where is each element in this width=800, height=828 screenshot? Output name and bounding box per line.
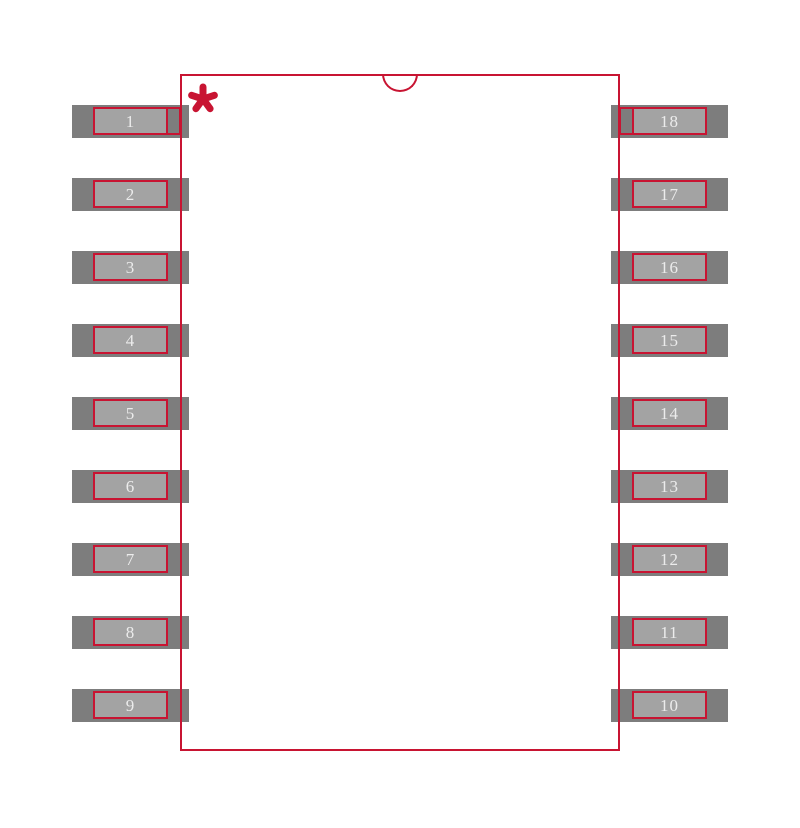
- pin-number-label: 10: [660, 697, 679, 714]
- pad-pin-10: 10: [611, 689, 728, 722]
- left-pad-column: 1 2 3 4 5: [72, 105, 189, 722]
- pin-lead-outline: 12: [632, 545, 707, 573]
- pin-number-label: 4: [126, 332, 136, 349]
- package-body-outline: [180, 74, 620, 751]
- pad-pin-8: 8: [72, 616, 189, 649]
- pin-number-label: 17: [660, 186, 679, 203]
- pin-number-label: 2: [126, 186, 136, 203]
- pad-pin-13: 13: [611, 470, 728, 503]
- pad-pin-9: 9: [72, 689, 189, 722]
- pin-lead-outline: 6: [93, 472, 168, 500]
- right-pad-column: 18 17 16 15 14: [611, 105, 728, 722]
- pin-lead-outline: 1: [93, 107, 168, 135]
- pin-lead-outline: 10: [632, 691, 707, 719]
- pin-number-label: 12: [660, 551, 679, 568]
- pin-number-label: 7: [126, 551, 136, 568]
- pin-number-label: 6: [126, 478, 136, 495]
- index-notch: [382, 74, 418, 92]
- pin-number-label: 1: [126, 113, 136, 130]
- pin-lead-outline: 13: [632, 472, 707, 500]
- pin-lead-outline: 2: [93, 180, 168, 208]
- pin-number-label: 18: [660, 113, 679, 130]
- pad-pin-3: 3: [72, 251, 189, 284]
- pin-lead-outline: 15: [632, 326, 707, 354]
- pad-pin-4: 4: [72, 324, 189, 357]
- pad-pin-15: 15: [611, 324, 728, 357]
- pin-number-label: 15: [660, 332, 679, 349]
- pin-lead-outline: 8: [93, 618, 168, 646]
- pin-number-label: 11: [660, 624, 678, 641]
- pin-number-label: 3: [126, 259, 136, 276]
- pad-pin-5: 5: [72, 397, 189, 430]
- pad-pin-11: 11: [611, 616, 728, 649]
- pin-lead-outline: 11: [632, 618, 707, 646]
- pin-lead-outline: 14: [632, 399, 707, 427]
- pad-pin-18: 18: [611, 105, 728, 138]
- pin1-asterisk-icon: [187, 83, 219, 115]
- pin-number-label: 14: [660, 405, 679, 422]
- pin-lead-outline: 7: [93, 545, 168, 573]
- pin-number-label: 13: [660, 478, 679, 495]
- pin-lead-outline: 17: [632, 180, 707, 208]
- pad-pin-7: 7: [72, 543, 189, 576]
- pad-pin-16: 16: [611, 251, 728, 284]
- pin-lead-outline: 16: [632, 253, 707, 281]
- pad-pin-17: 17: [611, 178, 728, 211]
- pin-lead-outline: 9: [93, 691, 168, 719]
- pin-lead-stub: [166, 107, 181, 135]
- pin-lead-outline: 3: [93, 253, 168, 281]
- pin-number-label: 8: [126, 624, 136, 641]
- pad-pin-2: 2: [72, 178, 189, 211]
- pad-pin-1: 1: [72, 105, 189, 138]
- pin-lead-outline: 5: [93, 399, 168, 427]
- pad-pin-14: 14: [611, 397, 728, 430]
- pin-lead-outline: 18: [632, 107, 707, 135]
- pin-number-label: 9: [126, 697, 136, 714]
- pad-pin-6: 6: [72, 470, 189, 503]
- pin-number-label: 16: [660, 259, 679, 276]
- footprint-canvas: 1 2 3 4 5: [0, 0, 800, 828]
- pad-pin-12: 12: [611, 543, 728, 576]
- pin-lead-outline: 4: [93, 326, 168, 354]
- pin-number-label: 5: [126, 405, 136, 422]
